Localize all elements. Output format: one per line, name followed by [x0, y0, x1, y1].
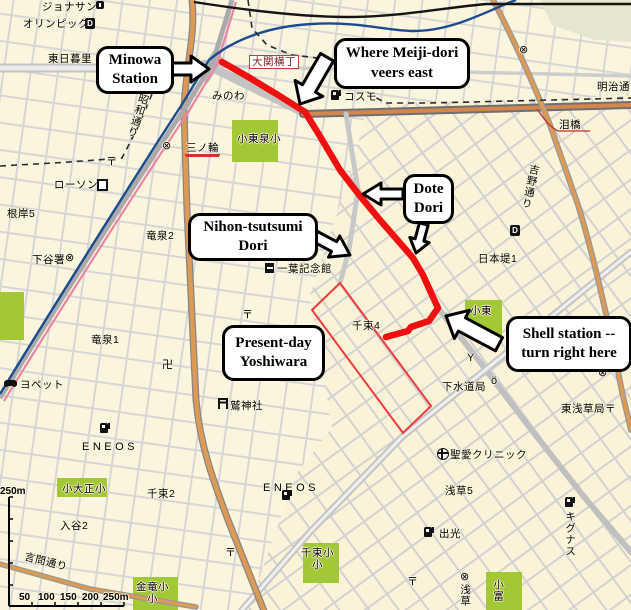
- museum-icon: [265, 263, 274, 273]
- police-icon: ⊗: [162, 141, 171, 152]
- map-canvas[interactable]: ジョナサンオリンピック東日暮里大関横丁みのわ明治通りコスモ昭和通り泪橋小東泉小三…: [0, 0, 631, 610]
- label-showa-dori: 昭和通り: [125, 92, 151, 139]
- fire-icon: Y: [467, 353, 474, 364]
- scale-100: 100: [38, 592, 55, 604]
- label-ryusen-2: 竜泉2: [146, 230, 174, 242]
- label-olympic: オリンピック: [23, 18, 89, 30]
- label-minowa-stop: 三ノ輪: [186, 142, 219, 157]
- label-senzoku-2: 千束2: [147, 488, 175, 500]
- label-jonathans: ジョナサン: [42, 1, 97, 13]
- label-higashi-nippori: 東日暮里: [48, 53, 92, 65]
- scale-150: 150: [60, 592, 77, 604]
- map-labels-layer: ジョナサンオリンピック東日暮里大関横丁みのわ明治通りコスモ昭和通り泪橋小東泉小三…: [0, 0, 631, 610]
- label-yopet: ヨペット: [20, 379, 64, 391]
- hospital-icon: [437, 448, 449, 460]
- torii-icon: [218, 398, 228, 409]
- label-taisho-elementary: 小大正小: [62, 483, 106, 495]
- face-icon: ö: [491, 376, 497, 387]
- temple-icon: 卍: [162, 360, 173, 371]
- label-nihonzutsumi-1: 日本堤1: [478, 253, 517, 265]
- label-kygnus: キグナス: [564, 511, 576, 557]
- label-asakusa-5: 浅草5: [445, 485, 473, 497]
- post-icon: 〒: [242, 310, 253, 321]
- label-otori-shrine: 鷲神社: [230, 400, 263, 412]
- label-shitaya-police: 下谷署: [32, 254, 65, 266]
- post-icon: 〒: [407, 577, 418, 588]
- post-icon: 〒: [106, 157, 117, 168]
- police-icon: ⊗: [519, 45, 528, 56]
- label-sewerage-bureau: 下水道局: [442, 381, 486, 393]
- police-icon: ⊗: [598, 368, 607, 379]
- label-asakusa-vert: 浅草: [459, 584, 471, 607]
- label-iriya-2: 入谷2: [60, 520, 88, 532]
- gas-icon: [282, 490, 290, 500]
- label-idemitsu: 出光: [439, 528, 461, 540]
- car-icon: [4, 380, 17, 386]
- police-icon: ⊗: [460, 572, 469, 583]
- d-icon: D: [85, 18, 95, 29]
- label-senzoku-4: 千束4: [352, 320, 380, 332]
- label-cosmo-gas: コスモ: [344, 91, 377, 103]
- gas-icon: [565, 497, 573, 507]
- gas-icon: [331, 90, 339, 100]
- d-icon: D: [510, 225, 520, 236]
- scale-50: 50: [19, 592, 30, 604]
- label-tosen-elementary: 小東泉小: [237, 133, 281, 145]
- label-minowa-hiragana: みのわ: [212, 90, 245, 102]
- label-senzoku-elementary: 千束小 小: [301, 547, 334, 571]
- label-seiai-clinic: 聖愛クリニック: [450, 449, 527, 461]
- scale-vertical-max: 250m: [0, 486, 26, 498]
- label-kotomi: 小富: [492, 579, 504, 602]
- label-meiji-dori: 明治通り: [597, 81, 631, 93]
- label-higashi-asakusa-post: 東浅草局〒: [561, 403, 616, 415]
- label-namidabashi: 泪橋: [559, 119, 581, 131]
- police-icon: ⊗: [312, 364, 321, 375]
- gas-icon: [424, 527, 432, 537]
- police-icon: ⊗: [65, 253, 74, 264]
- scale-250m: 250m: [103, 592, 129, 604]
- label-kotosen: 小東: [470, 305, 492, 317]
- label-lawson: ローソン: [54, 179, 98, 191]
- label-ozeki-yokocho: 大関横丁: [249, 55, 299, 69]
- label-ryusen-1: 竜泉1: [91, 334, 119, 346]
- conv-icon: [97, 179, 108, 191]
- label-yoshino-dori: 吉野通り: [519, 163, 540, 211]
- scale-200: 200: [82, 592, 99, 604]
- gas-icon: [100, 423, 108, 433]
- label-kinryu-elementary: 金竜小 小: [136, 581, 169, 605]
- label-kototoi-dori: 言問通り: [23, 551, 69, 573]
- label-eneos-west: ENEOS: [82, 441, 138, 454]
- restaurant-icon: [96, 1, 104, 9]
- post-icon: 〒: [225, 548, 236, 559]
- label-negishi-5: 根岸5: [7, 208, 35, 220]
- label-ichiyo-museum: 一葉記念館: [277, 263, 332, 275]
